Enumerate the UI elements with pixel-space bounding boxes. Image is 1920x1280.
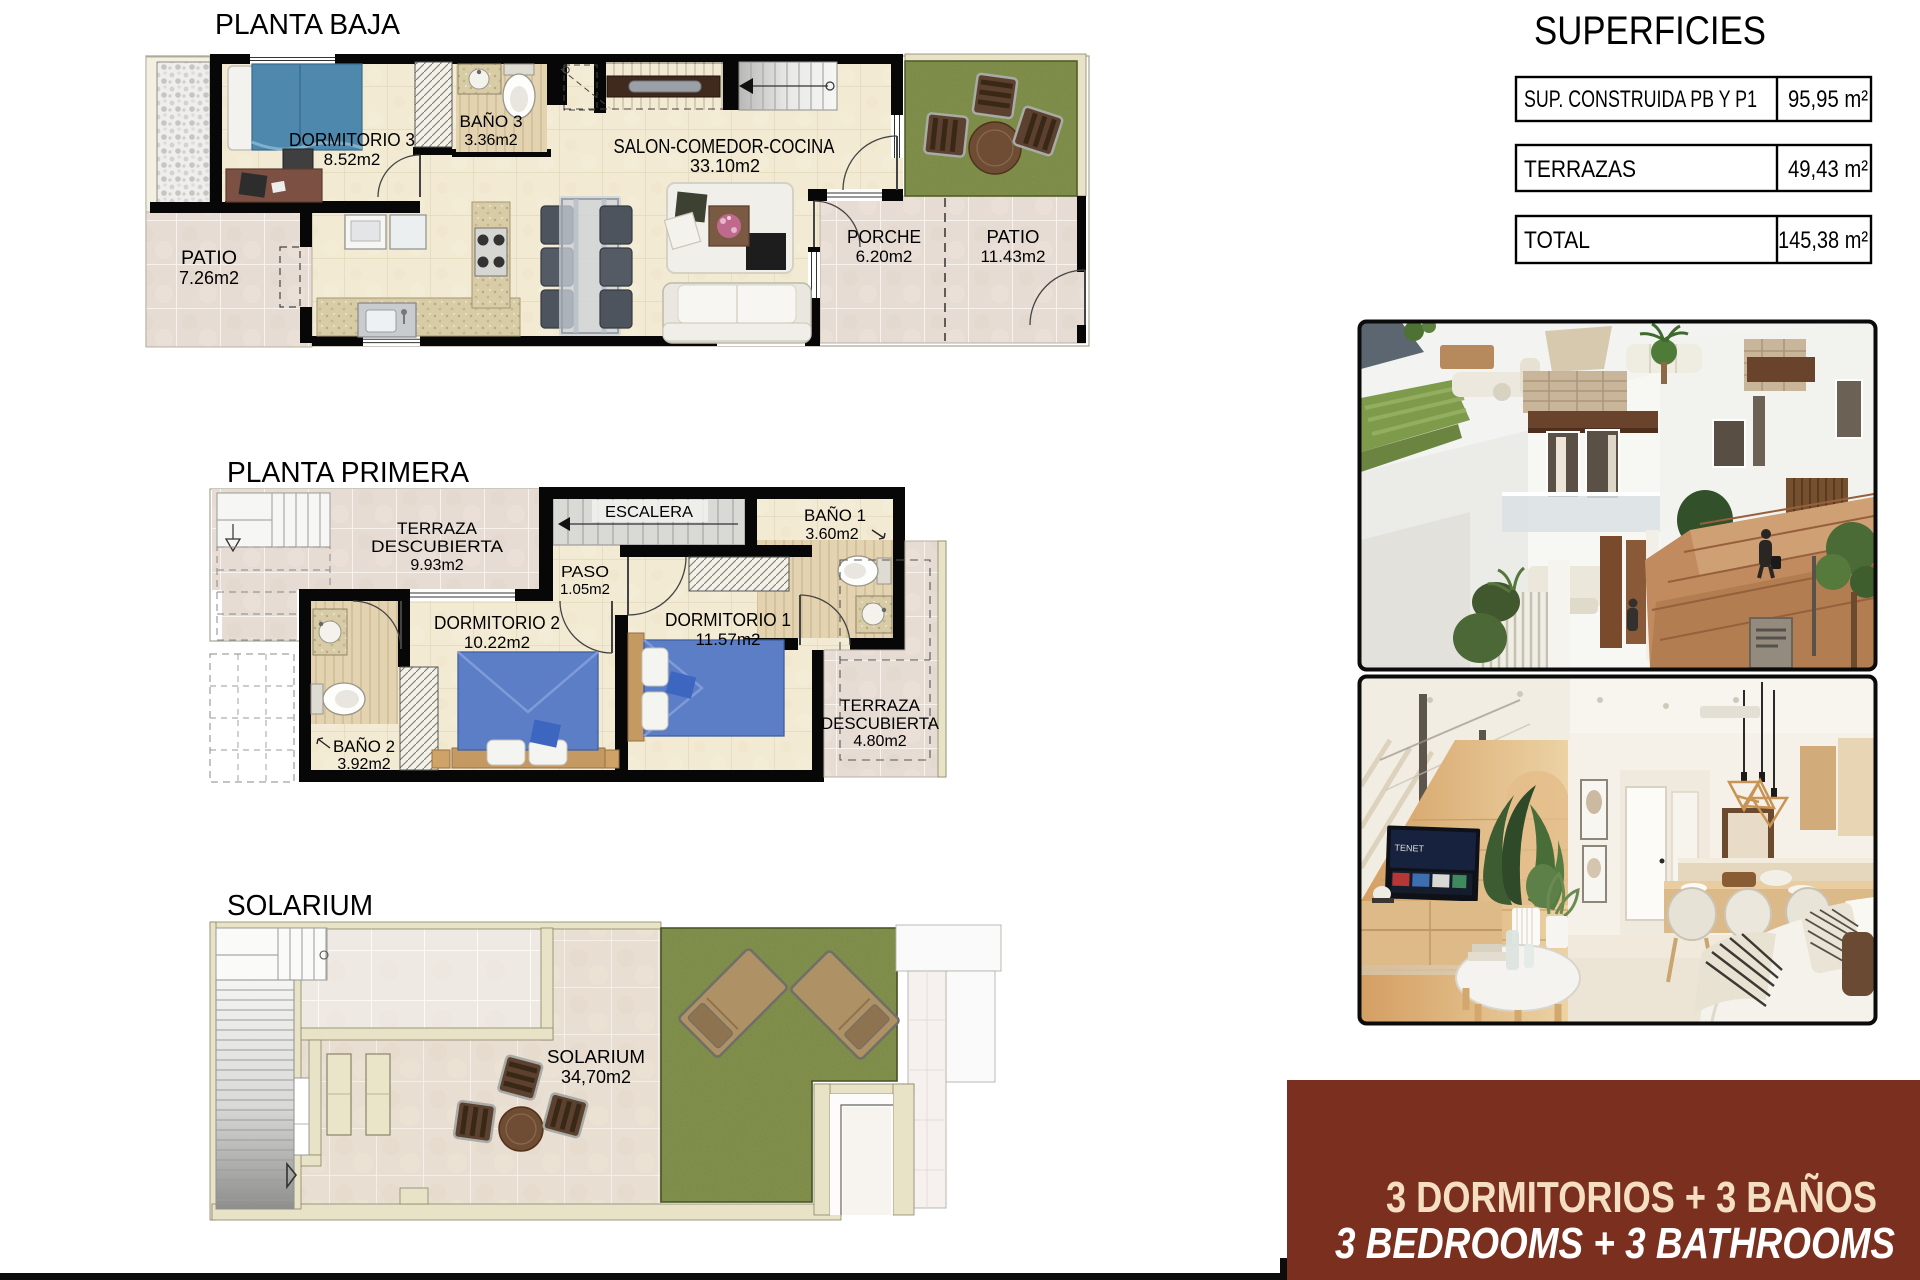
svg-text:11.57m2: 11.57m2 bbox=[696, 630, 761, 649]
svg-text:9.93m2: 9.93m2 bbox=[410, 557, 463, 574]
svg-text:SALON-COMEDOR-COCINA: SALON-COMEDOR-COCINA bbox=[614, 136, 836, 158]
svg-text:95,95 m²: 95,95 m² bbox=[1788, 86, 1868, 113]
svg-text:8.52m2: 8.52m2 bbox=[324, 150, 381, 169]
svg-text:TERRAZA: TERRAZA bbox=[840, 696, 921, 715]
svg-text:10.22m2: 10.22m2 bbox=[464, 633, 530, 652]
svg-text:145,38 m²: 145,38 m² bbox=[1778, 227, 1868, 254]
svg-text:PATIO: PATIO bbox=[181, 248, 237, 269]
svg-text:7.26m2: 7.26m2 bbox=[179, 268, 239, 288]
svg-text:34,70m2: 34,70m2 bbox=[561, 1067, 631, 1087]
svg-text:SOLARIUM: SOLARIUM bbox=[547, 1047, 645, 1067]
svg-text:DORMITORIO 3: DORMITORIO 3 bbox=[289, 130, 415, 150]
svg-text:3.60m2: 3.60m2 bbox=[805, 526, 858, 543]
svg-text:PLANTA PRIMERA: PLANTA PRIMERA bbox=[227, 457, 470, 489]
svg-text:BAÑO 3: BAÑO 3 bbox=[460, 112, 523, 131]
svg-text:SUP. CONSTRUIDA PB Y P1: SUP. CONSTRUIDA PB Y P1 bbox=[1524, 86, 1757, 113]
svg-text:3.92m2: 3.92m2 bbox=[337, 756, 390, 773]
svg-text:TENET: TENET bbox=[1394, 843, 1424, 854]
svg-text:SOLARIUM: SOLARIUM bbox=[227, 890, 373, 922]
svg-text:3 DORMITORIOS + 3 BAÑOS: 3 DORMITORIOS + 3 BAÑOS bbox=[1386, 1172, 1877, 1222]
svg-text:49,43 m²: 49,43 m² bbox=[1788, 156, 1868, 183]
svg-text:DORMITORIO 2: DORMITORIO 2 bbox=[434, 613, 560, 633]
svg-text:BAÑO 2: BAÑO 2 bbox=[333, 737, 395, 756]
svg-text:PATIO: PATIO bbox=[987, 227, 1040, 247]
svg-text:TERRAZA: TERRAZA bbox=[397, 519, 478, 538]
svg-text:PASO: PASO bbox=[561, 564, 609, 581]
svg-text:ESCALERA: ESCALERA bbox=[605, 504, 693, 521]
svg-text:SUPERFICIES: SUPERFICIES bbox=[1534, 9, 1766, 53]
svg-text:PLANTA BAJA: PLANTA BAJA bbox=[215, 9, 401, 41]
svg-text:DESCUBIERTA: DESCUBIERTA bbox=[821, 714, 940, 733]
svg-text:11.43m2: 11.43m2 bbox=[981, 247, 1046, 266]
svg-text:TOTAL: TOTAL bbox=[1524, 227, 1590, 254]
svg-text:BAÑO 1: BAÑO 1 bbox=[804, 506, 866, 525]
svg-text:DORMITORIO 1: DORMITORIO 1 bbox=[665, 610, 791, 630]
svg-text:DESCUBIERTA: DESCUBIERTA bbox=[371, 537, 504, 556]
svg-text:TERRAZAS: TERRAZAS bbox=[1524, 156, 1636, 183]
svg-text:3 BEDROOMS + 3 BATHROOMS: 3 BEDROOMS + 3 BATHROOMS bbox=[1335, 1219, 1895, 1268]
svg-text:4.80m2: 4.80m2 bbox=[853, 733, 906, 750]
svg-text:3.36m2: 3.36m2 bbox=[464, 132, 517, 149]
svg-text:33.10m2: 33.10m2 bbox=[690, 156, 760, 176]
svg-text:6.20m2: 6.20m2 bbox=[856, 247, 913, 266]
svg-text:PORCHE: PORCHE bbox=[847, 227, 921, 247]
svg-text:1.05m2: 1.05m2 bbox=[560, 581, 610, 598]
